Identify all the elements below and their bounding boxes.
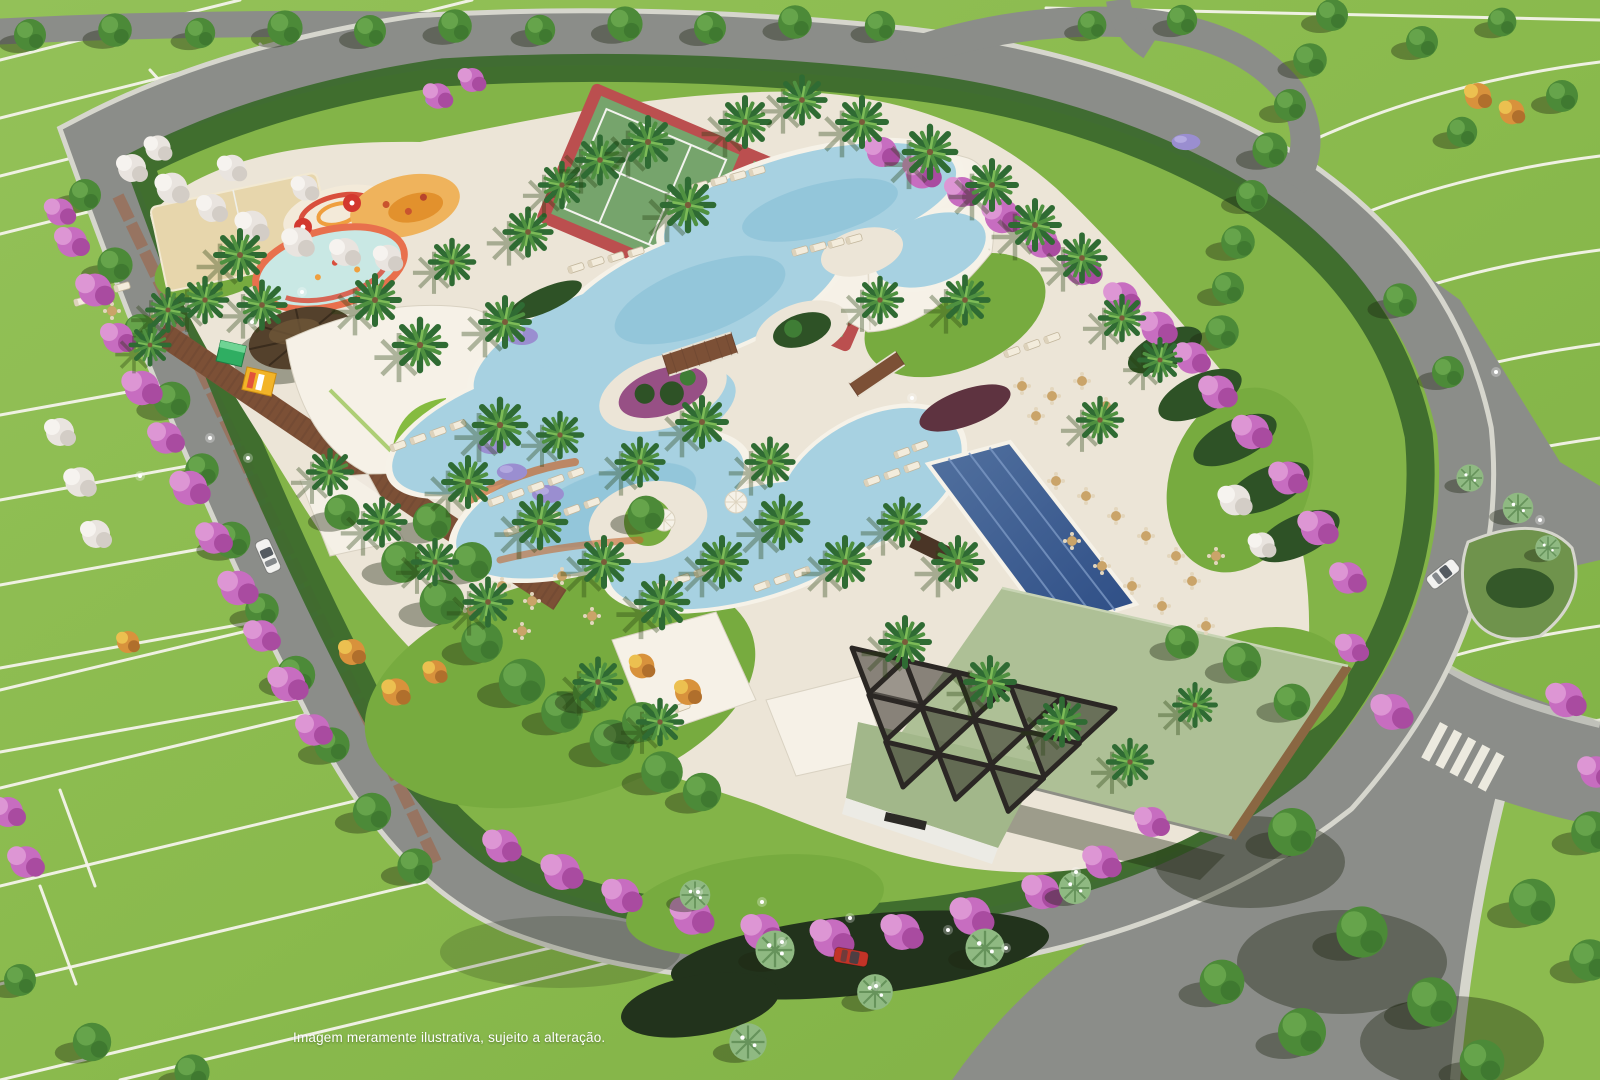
lamp-glint [243,453,253,463]
lamp-glint [297,287,307,297]
lamp-glint [871,981,881,991]
lamp-glint [1071,867,1081,877]
lamp-glint [845,913,855,923]
lamp-glint [205,433,215,443]
masterplan-scene [0,0,1600,1080]
white-umbrella [725,491,747,513]
lamp-glint [907,393,917,403]
purple-flower-bed [1172,134,1201,150]
lamp-glint [693,887,703,897]
lamp-glint [135,471,145,481]
lamp-glint [757,897,767,907]
resort-aerial-render: Imagem meramente ilustrativa, sujeito a … [0,0,1600,1080]
lamp-glint [943,925,953,935]
lamp-glint [247,317,257,327]
purple-flower-bed [497,463,527,480]
lamp-glint [1491,367,1501,377]
red-umbrella [343,194,361,212]
lamp-glint [1535,515,1545,525]
lamp-glint [1001,943,1011,953]
disclaimer-caption: Imagem meramente ilustrativa, sujeito a … [293,1030,605,1045]
lamp-glint [777,937,787,947]
